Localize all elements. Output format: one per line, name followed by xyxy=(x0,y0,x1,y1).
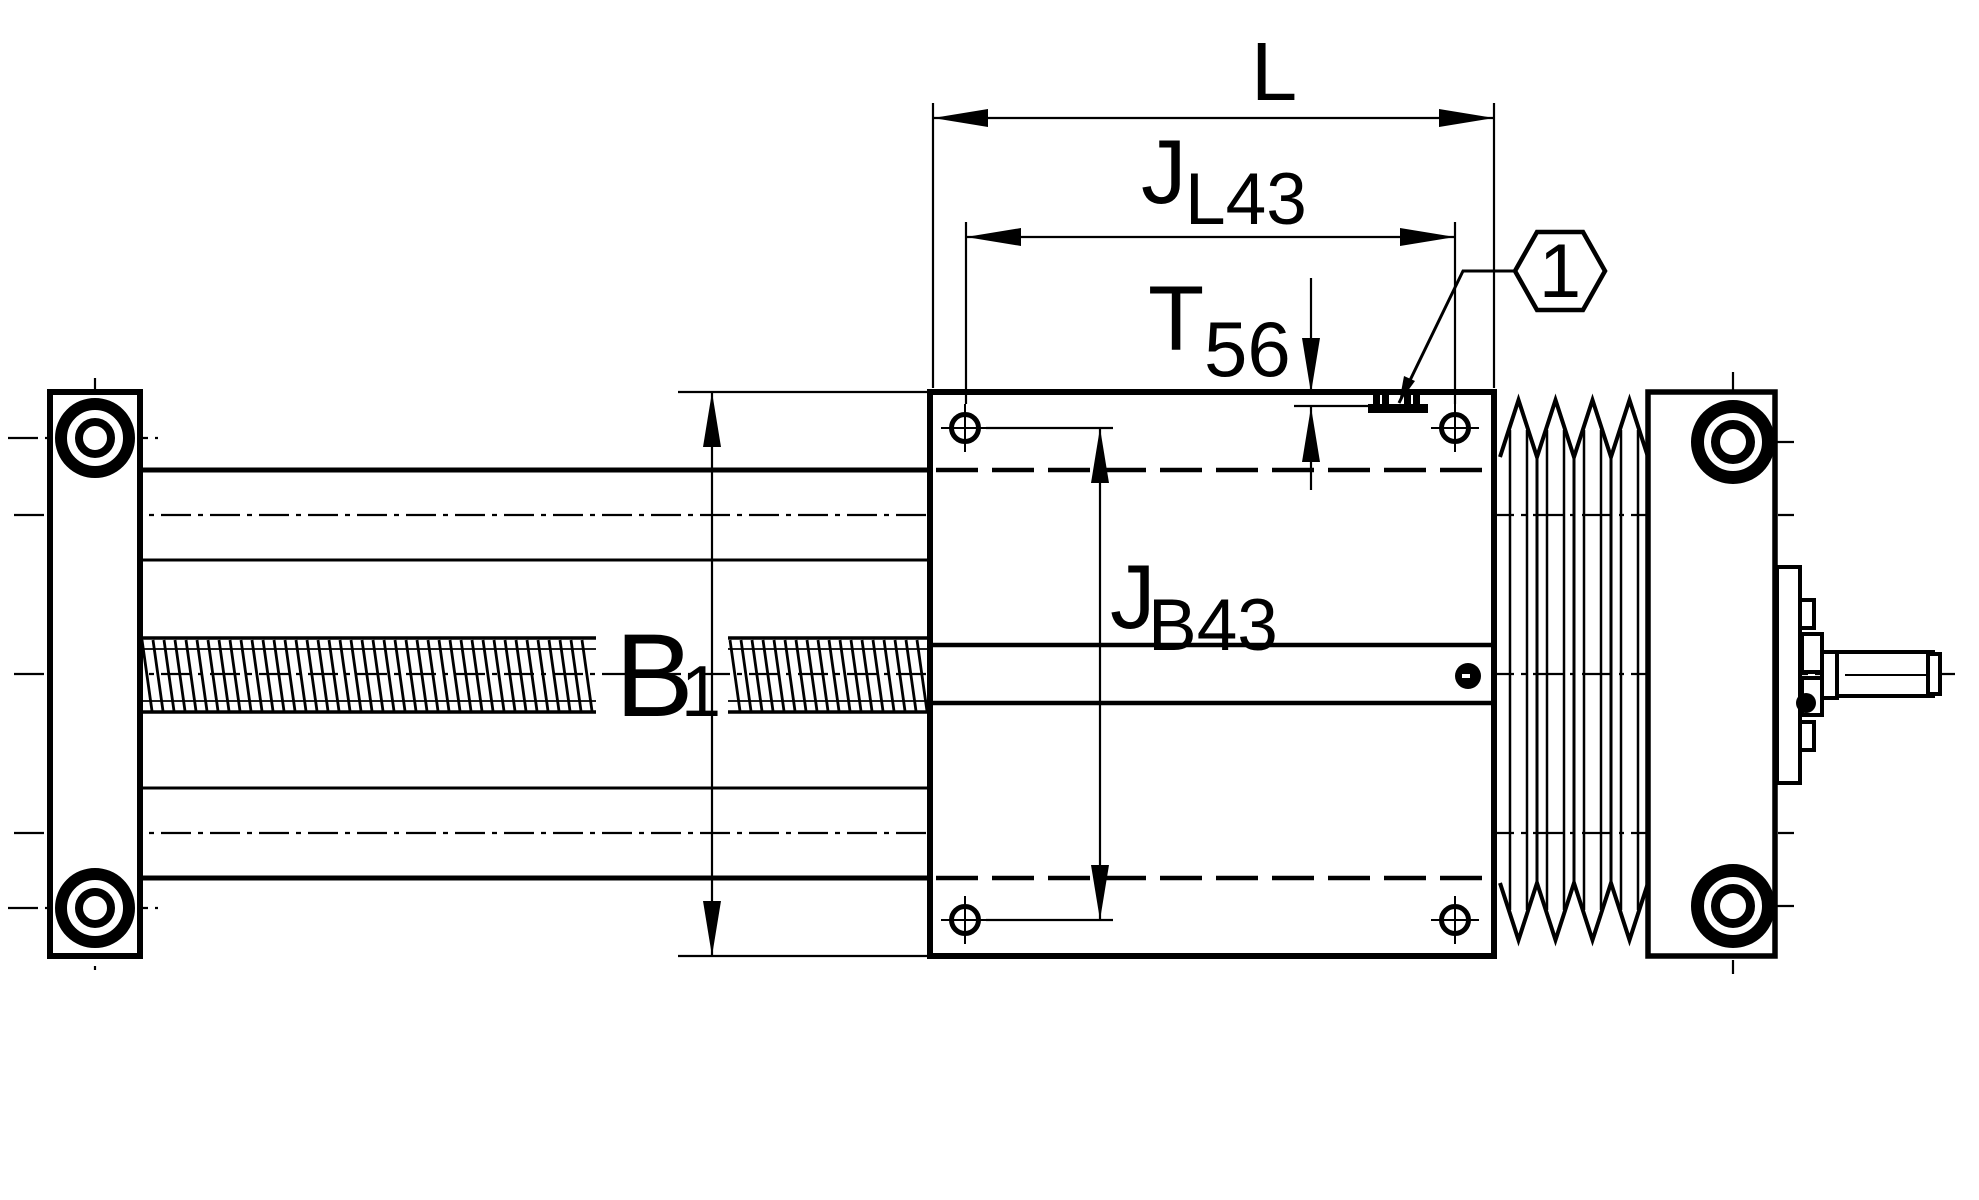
dim-T56-arrow-down xyxy=(1302,338,1320,393)
carriage-block xyxy=(930,392,1494,956)
balloon-number: 1 xyxy=(1539,229,1581,314)
left-end-block xyxy=(50,392,140,956)
journal-hub-top xyxy=(1802,634,1822,672)
dim-JL43-arrow-right xyxy=(1400,228,1455,246)
dim-B1-sub: 1 xyxy=(681,652,721,732)
journal-key-top xyxy=(1800,600,1814,628)
shaft-end-cap xyxy=(1928,654,1940,694)
bellows-top-zigzag xyxy=(1500,400,1648,457)
dim-L-arrow-left xyxy=(933,109,988,127)
dim-JL43-label: J xyxy=(1141,122,1187,223)
lube-port-mark xyxy=(1462,674,1470,678)
set-screw-dot xyxy=(1796,693,1816,713)
ball-screw-thread xyxy=(140,638,930,712)
leader-line xyxy=(1399,271,1515,403)
dim-B1-arrow-down xyxy=(703,901,721,956)
dim-JL43-sub: L43 xyxy=(1185,159,1307,240)
journal-collar xyxy=(1822,652,1837,698)
dim-JL43-arrow-left xyxy=(966,228,1021,246)
drive-journal xyxy=(1777,567,1940,783)
right-end-block xyxy=(1648,392,1775,956)
dim-L-arrow-right xyxy=(1439,109,1494,127)
journal-key-bottom xyxy=(1800,722,1814,750)
bellows xyxy=(1500,400,1648,940)
dim-T56-label: T xyxy=(1148,268,1204,370)
dim-JB43-sub: B43 xyxy=(1148,585,1278,666)
dim-T56-sub: 56 xyxy=(1204,305,1291,393)
balloon-callout-1: 1 xyxy=(1399,229,1605,403)
dim-L-label: L xyxy=(1251,25,1297,118)
technical-drawing-page: L J L43 T 56 J B43 B 1 xyxy=(0,0,1979,1200)
carriage-outline xyxy=(930,392,1494,956)
journal-flange-plate xyxy=(1777,567,1800,783)
bellows-bottom-zigzag xyxy=(1500,883,1648,940)
dim-B1-arrow-up xyxy=(703,392,721,447)
linear-actuator-dimensional-drawing: L J L43 T 56 J B43 B 1 xyxy=(0,0,1979,1200)
